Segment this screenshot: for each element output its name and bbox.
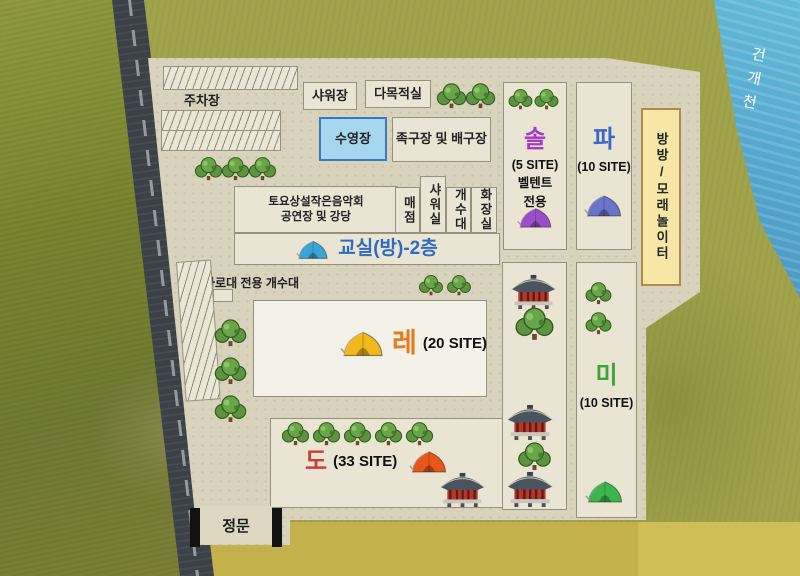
hanok-icon [506,404,554,441]
site-name-sol: 솔 [524,128,546,152]
classroom-box: 교실(방)-2층 [234,233,500,265]
restroom-box: 화장실 [471,187,497,233]
sink-label: 개수대 [451,188,467,232]
store-box: 매점 [395,187,420,233]
trampoline-sand-box: 방방/모래놀이터 [641,108,681,286]
tent-icon-do [409,448,449,475]
concert-hall-box: 토요상설작은음악회 공연장 및 강당 [234,186,398,233]
shower-room-box: 샤워실 [420,176,446,233]
tree-icon [194,156,223,181]
multipurpose-room-box: 다목적실 [365,80,431,108]
trampoline-sand-label: 방방/모래놀이터 [653,132,669,262]
tree-icon [312,421,341,446]
tree-icon [585,311,612,335]
tent-icon-pa [584,192,624,219]
site-name-do: 도 [305,450,327,474]
gate-post-right [272,508,282,547]
concert-hall-line1: 토요상설작은음악회 [268,195,363,209]
store-label: 매점 [400,196,416,225]
tree-icon [214,318,247,347]
tree-icon [436,82,467,109]
classroom-tent-icon [296,238,330,261]
swimming-pool-box: 수영장 [319,117,387,161]
tree-icon [534,88,559,110]
tent-icon-re [340,328,386,359]
parking-label: 주차장 [184,90,220,109]
campground-map: 건개천 주차장 샤워장 다목적실 수영장 족구장 및 배구장 토요상설작은음악회… [0,0,800,576]
multipurpose-room-label: 다목적실 [374,86,422,102]
tree-icon [374,421,403,446]
tree-icon [405,421,434,446]
parking-lot-row2 [161,110,281,131]
site-name-re: 레 [392,330,417,357]
hanok-icon [510,274,557,310]
tree-icon [418,274,444,296]
tent-icon-sol [517,205,554,230]
site-count-sol: (5 SITE) [512,158,559,172]
sink-box: 개수대 [446,187,471,233]
parking-lot-row1 [163,66,298,90]
tree-icon [517,441,552,471]
zone-do-labels: 도 (33 SITE) [305,448,449,475]
site-name-pa: 파 [593,128,615,152]
tree-icon [281,421,310,446]
sports-court-label: 족구장 및 배구장 [396,131,487,147]
tree-icon [446,274,472,296]
site-name-mi: 미 [595,364,617,388]
firepit-sink-box [213,289,233,302]
zone-pa-labels: 파 (10 SITE) [576,128,632,174]
shower-house-label: 샤워장 [312,88,348,104]
shower-room-label: 샤워실 [425,183,441,227]
sports-court-box: 족구장 및 배구장 [392,117,491,162]
swimming-pool-label: 수영장 [335,131,371,147]
zone-sol-labels: 솔 (5 SITE) 벨텐트 전용 [503,128,567,210]
tree-icon [343,421,372,446]
shower-house-box: 샤워장 [303,82,357,110]
tree-icon [508,88,533,110]
main-gate: 정문 [200,506,272,544]
tree-icon [465,82,496,109]
tree-icon [585,281,612,305]
tree-icon [214,394,247,423]
gate-post-left [190,508,200,547]
site-count-re: (20 SITE) [423,335,487,352]
restroom-label: 화장실 [476,188,492,232]
parking-lot-row3 [161,130,281,151]
zone-mi-labels: 미 (10 SITE) [576,364,637,410]
tree-icon [221,156,250,181]
hanok-icon [439,472,486,508]
site-count-do: (33 SITE) [333,453,397,470]
concert-hall-line2: 공연장 및 강당 [281,210,351,224]
site-count-pa: (10 SITE) [577,160,631,174]
hanok-icon [506,471,554,508]
tree-icon [514,306,555,341]
site-count-mi: (10 SITE) [580,396,634,410]
gate-label: 정문 [222,515,250,536]
site-note1-sol: 벨텐트 [518,172,553,191]
tent-icon-mi [585,478,625,505]
classroom-label: 교실(방)-2층 [338,237,437,261]
tree-icon [248,156,277,181]
zone-re-labels: 레 (20 SITE) [340,328,487,359]
bottom-grass-band-light [638,522,800,576]
tree-icon [214,356,247,385]
